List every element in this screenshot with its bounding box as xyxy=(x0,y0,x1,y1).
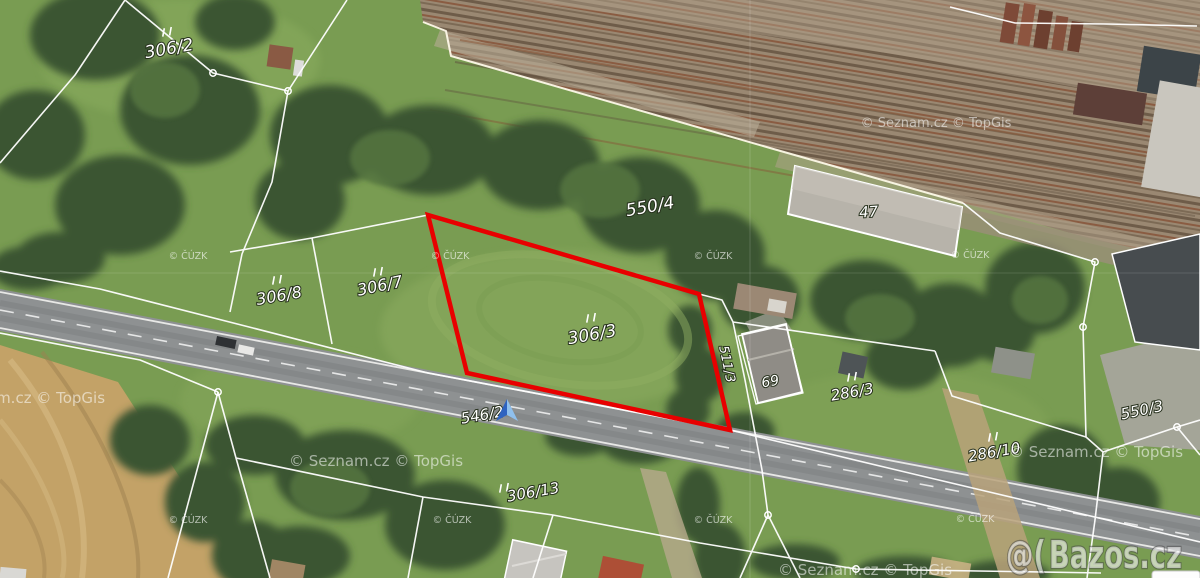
building-label-69: 69 xyxy=(760,373,780,392)
map-control-partial[interactable] xyxy=(1152,571,1200,578)
cuzk-watermark: © ČÚZK xyxy=(169,514,208,526)
building-label-47: 47 xyxy=(858,202,879,221)
cuzk-watermark: © ČÚZK xyxy=(433,514,472,526)
seznam-topgis-watermark: © Seznam.cz © TopGis xyxy=(861,116,1012,131)
seznam-topgis-watermark: © Seznam.cz © TopGis xyxy=(289,452,463,470)
seznam-topgis-watermark: © Seznam.cz © TopGis xyxy=(0,389,105,407)
cuzk-watermark: © ČÚZK xyxy=(694,514,733,526)
cuzk-watermark: © ČÚZK xyxy=(956,513,995,525)
terrain xyxy=(0,0,1200,578)
cuzk-watermark: © ČÚZK xyxy=(169,250,208,262)
shed-top-left xyxy=(267,44,294,69)
cuzk-watermark: © ČÚZK xyxy=(431,250,470,262)
seznam-topgis-watermark: © Seznam.cz © TopGis xyxy=(1009,443,1183,461)
cuzk-watermark: © ČÚZK xyxy=(694,250,733,262)
aerial-cadastral-map[interactable]: 306/2 550/4 47 306/8 306/7 306/3 546/2 5… xyxy=(0,0,1200,578)
cuzk-watermark: © ČÚZK xyxy=(951,249,990,261)
bazos-watermark: @(Bazos.cz xyxy=(1006,533,1182,577)
seznam-topgis-watermark: © Seznam.cz © TopGis xyxy=(778,561,952,578)
